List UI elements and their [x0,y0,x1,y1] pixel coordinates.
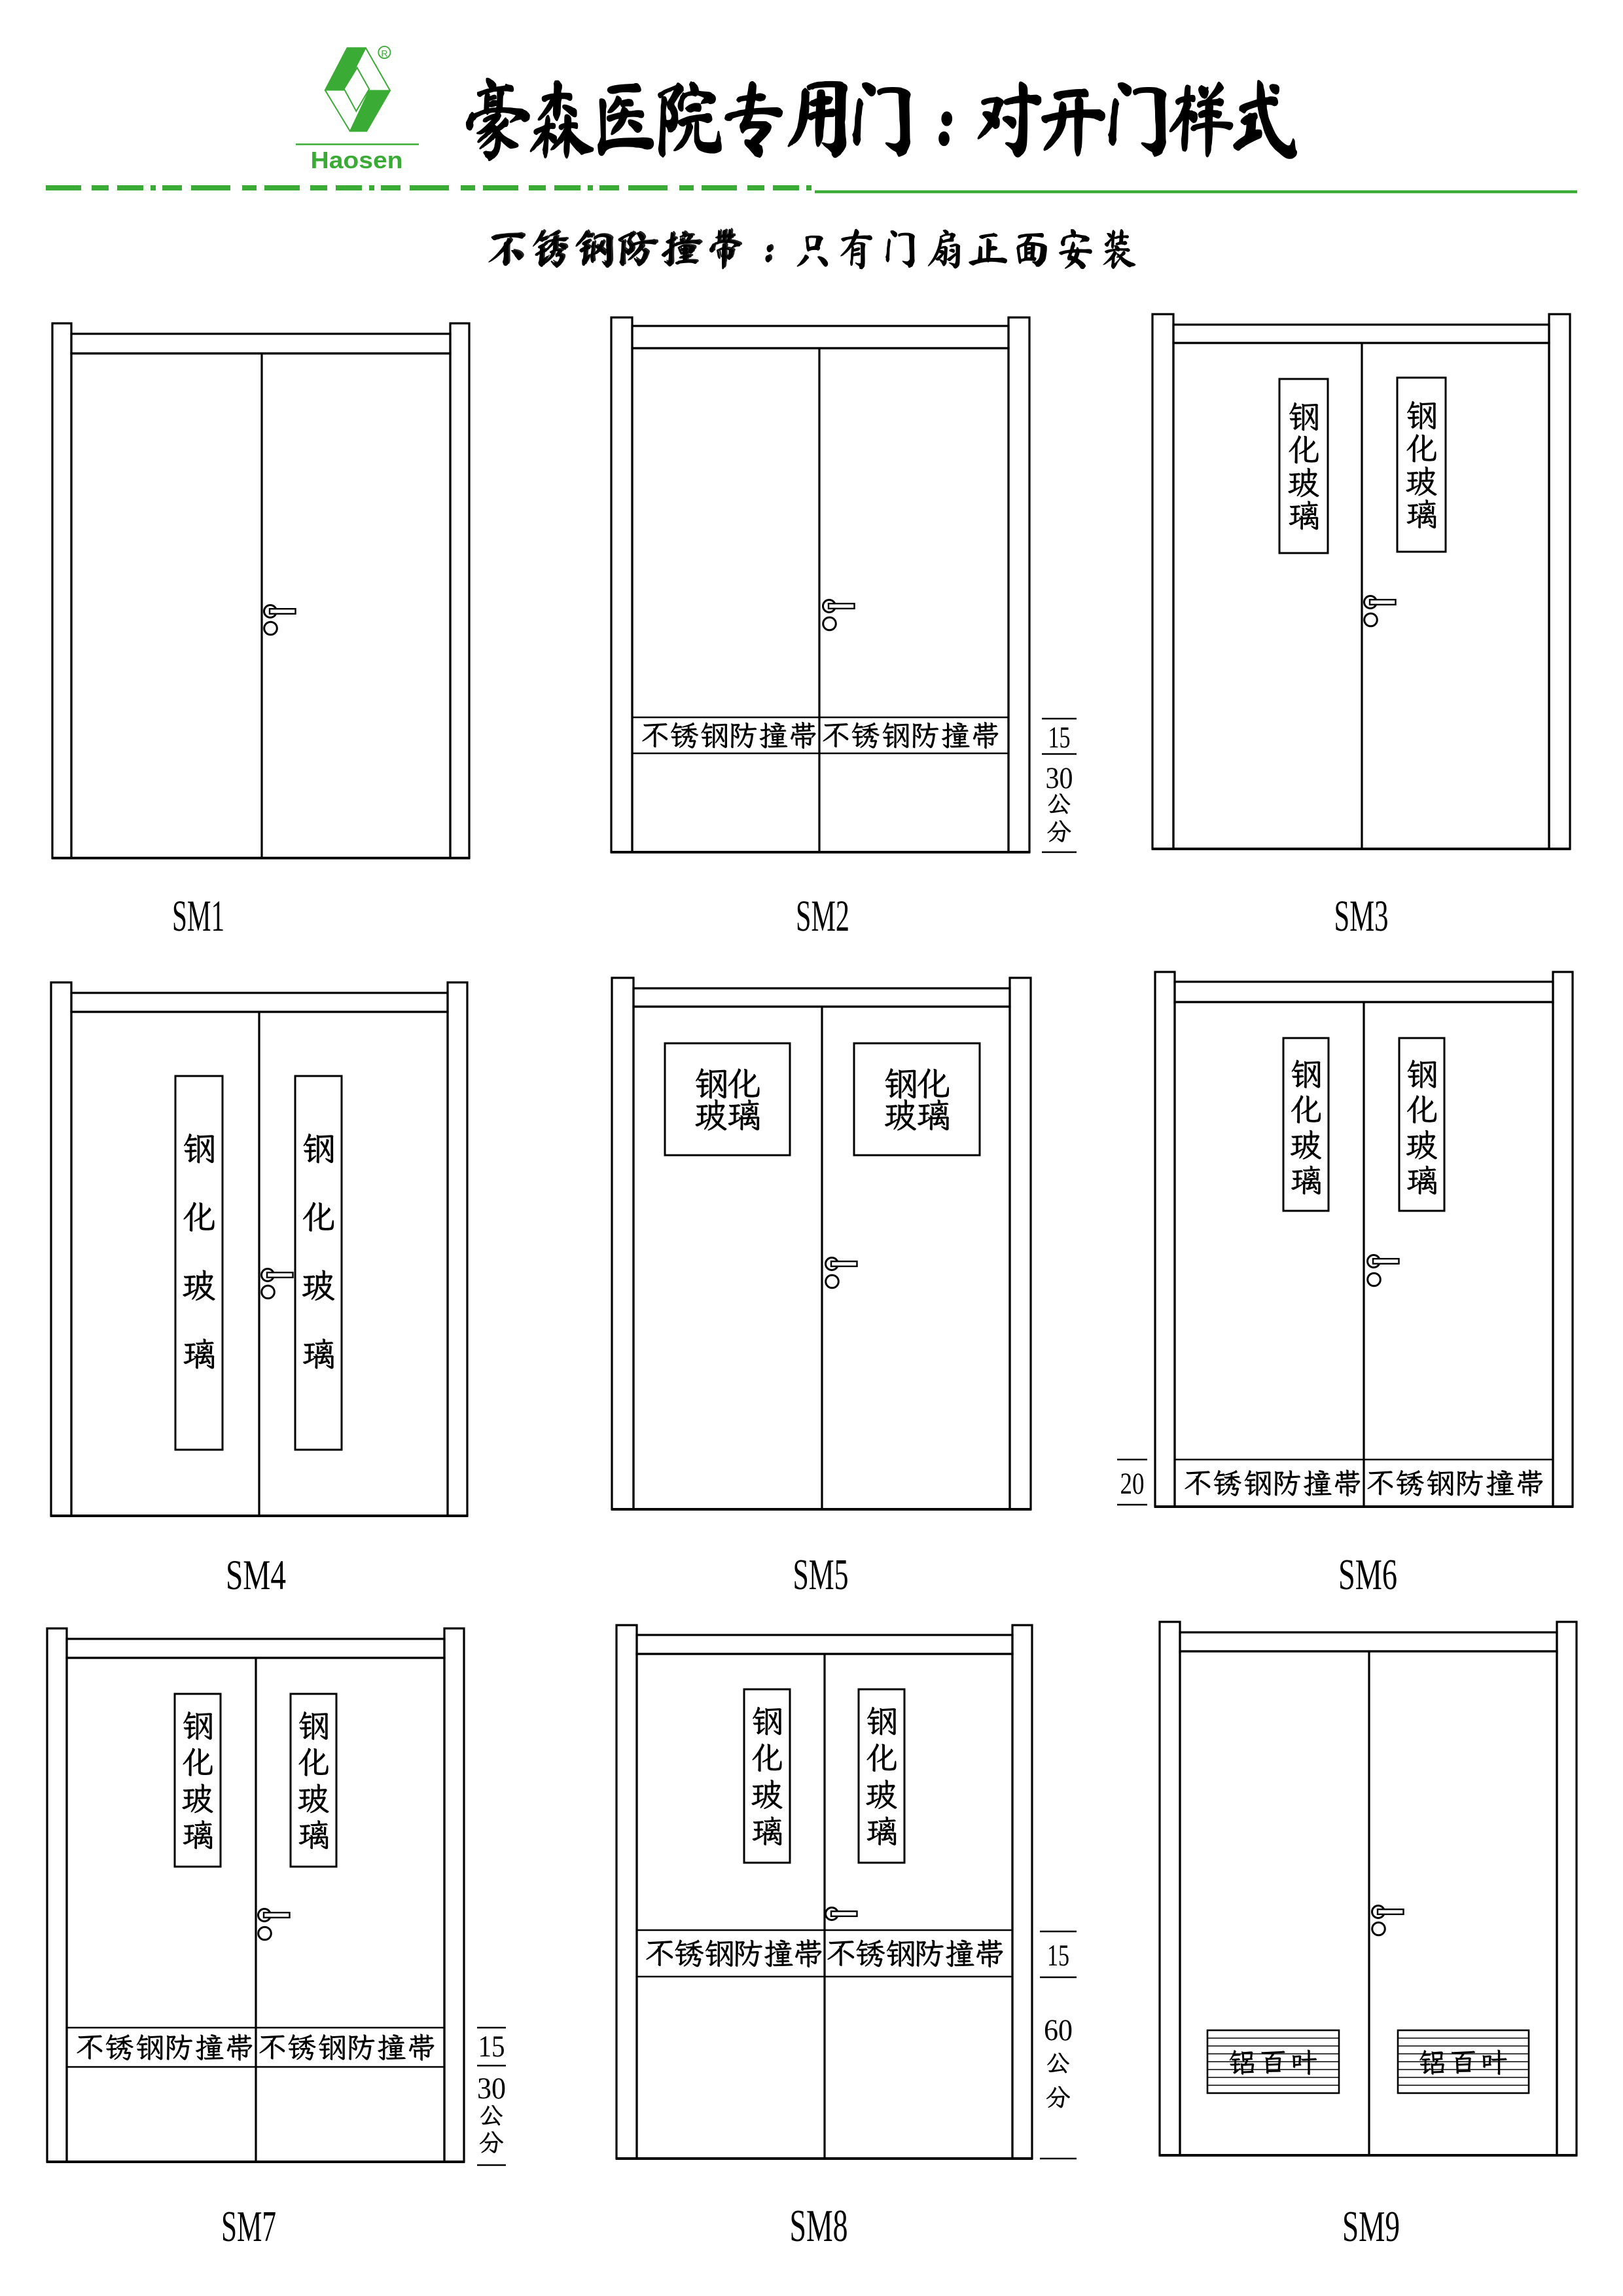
svg-text:30: 30 [1046,761,1073,795]
svg-text:SM6: SM6 [1338,1551,1397,1599]
svg-text:SM4: SM4 [226,1552,286,1599]
svg-text:SM8: SM8 [790,2201,848,2251]
svg-text:15: 15 [1048,721,1071,755]
svg-text:15: 15 [478,2030,505,2064]
svg-text:SM1: SM1 [172,891,224,941]
svg-text:SM5: SM5 [793,1551,849,1599]
svg-text:Haosen: Haosen [311,147,403,173]
svg-text:20: 20 [1120,1467,1145,1501]
svg-text:SM9: SM9 [1342,2202,1400,2251]
svg-text:SM2: SM2 [796,891,849,941]
svg-text:15: 15 [1047,1939,1069,1973]
svg-text:SM3: SM3 [1334,891,1389,941]
svg-text:SM7: SM7 [221,2202,276,2251]
svg-text:30: 30 [477,2072,506,2106]
svg-text:60: 60 [1044,2013,1073,2047]
svg-text:R: R [381,48,387,59]
